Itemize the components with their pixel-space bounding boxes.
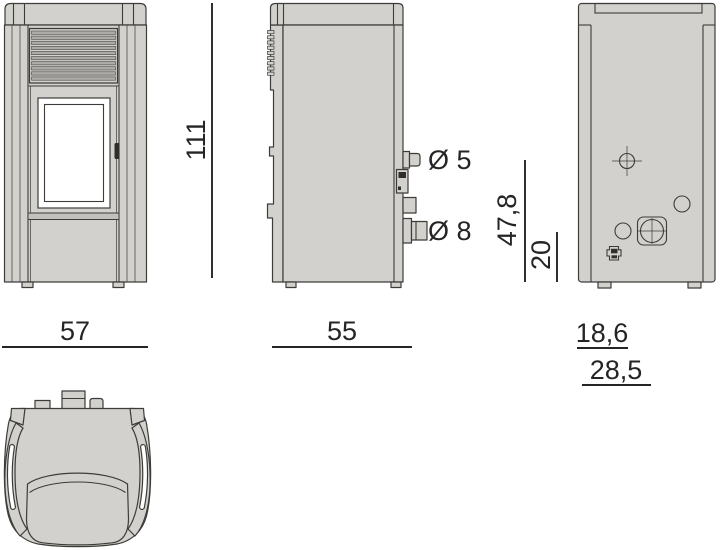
side-body xyxy=(283,25,403,282)
side-foot-back xyxy=(391,282,401,288)
back-lower-height-label: 20 xyxy=(526,240,556,270)
front-view xyxy=(5,4,147,288)
upper-pipe-flange xyxy=(403,152,410,169)
lower-pipe-diameter-label: Ø 8 xyxy=(428,216,472,246)
front-width-dimension-label: 57 xyxy=(60,316,90,346)
door-glass xyxy=(38,98,110,208)
top-front-panel xyxy=(27,473,129,545)
side-top-cap xyxy=(271,4,404,26)
middle-bracket xyxy=(403,198,416,214)
drawing-canvas: 111 57 55 Ø 5 Ø 8 47,8 20 18,6 28,5 xyxy=(0,0,726,550)
height-dimension-label: 111 xyxy=(181,119,211,160)
upper-pipe-diameter-label: Ø 5 xyxy=(428,145,472,175)
door-handle xyxy=(115,143,120,159)
front-foot-left xyxy=(22,282,33,288)
back-view xyxy=(579,4,716,289)
front-top-cap xyxy=(5,4,146,26)
back-upper-height-label: 47,8 xyxy=(492,194,522,247)
door-bottom-band xyxy=(28,213,119,220)
lower-pipe-flange xyxy=(403,219,412,244)
side-view xyxy=(268,4,428,288)
back-lower-offset-label: 28,5 xyxy=(590,355,643,385)
back-foot-left xyxy=(598,282,611,288)
side-louver-teeth xyxy=(268,31,275,76)
back-foot-right xyxy=(688,282,701,288)
upper-pipe xyxy=(410,154,421,167)
back-upper-offset-label: 18,6 xyxy=(576,318,629,348)
lower-pipe xyxy=(412,222,428,241)
back-body xyxy=(579,4,716,283)
hopper-lid-hinge xyxy=(62,391,85,410)
front-foot-right xyxy=(113,282,124,288)
depth-dimension-label: 55 xyxy=(327,316,357,346)
top-view xyxy=(4,391,150,547)
technical-drawing: 111 57 55 Ø 5 Ø 8 47,8 20 18,6 28,5 xyxy=(0,0,726,550)
side-foot-front xyxy=(286,282,296,288)
